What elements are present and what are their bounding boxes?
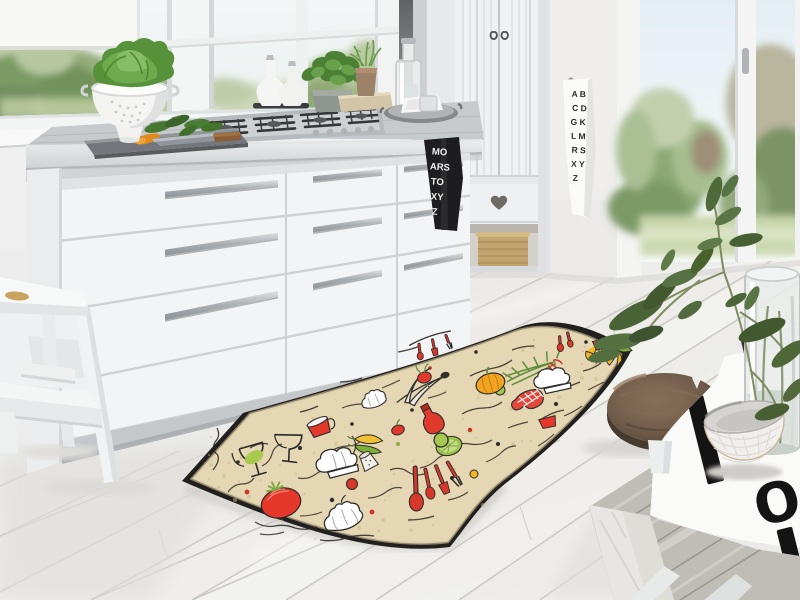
svg-text:X Y: X Y xyxy=(571,159,585,169)
svg-text:R S: R S xyxy=(571,145,586,155)
svg-text:ARS: ARS xyxy=(430,161,451,173)
svg-text:A B: A B xyxy=(571,89,586,99)
svg-text:Z: Z xyxy=(431,207,438,218)
svg-text:XY: XY xyxy=(430,191,444,203)
svg-text:Z: Z xyxy=(573,173,579,183)
svg-text:TO: TO xyxy=(430,176,444,188)
svg-text:G K: G K xyxy=(570,117,586,128)
svg-text:MO: MO xyxy=(432,146,448,158)
svg-text:C D: C D xyxy=(572,103,587,114)
svg-text:L M: L M xyxy=(571,131,586,141)
